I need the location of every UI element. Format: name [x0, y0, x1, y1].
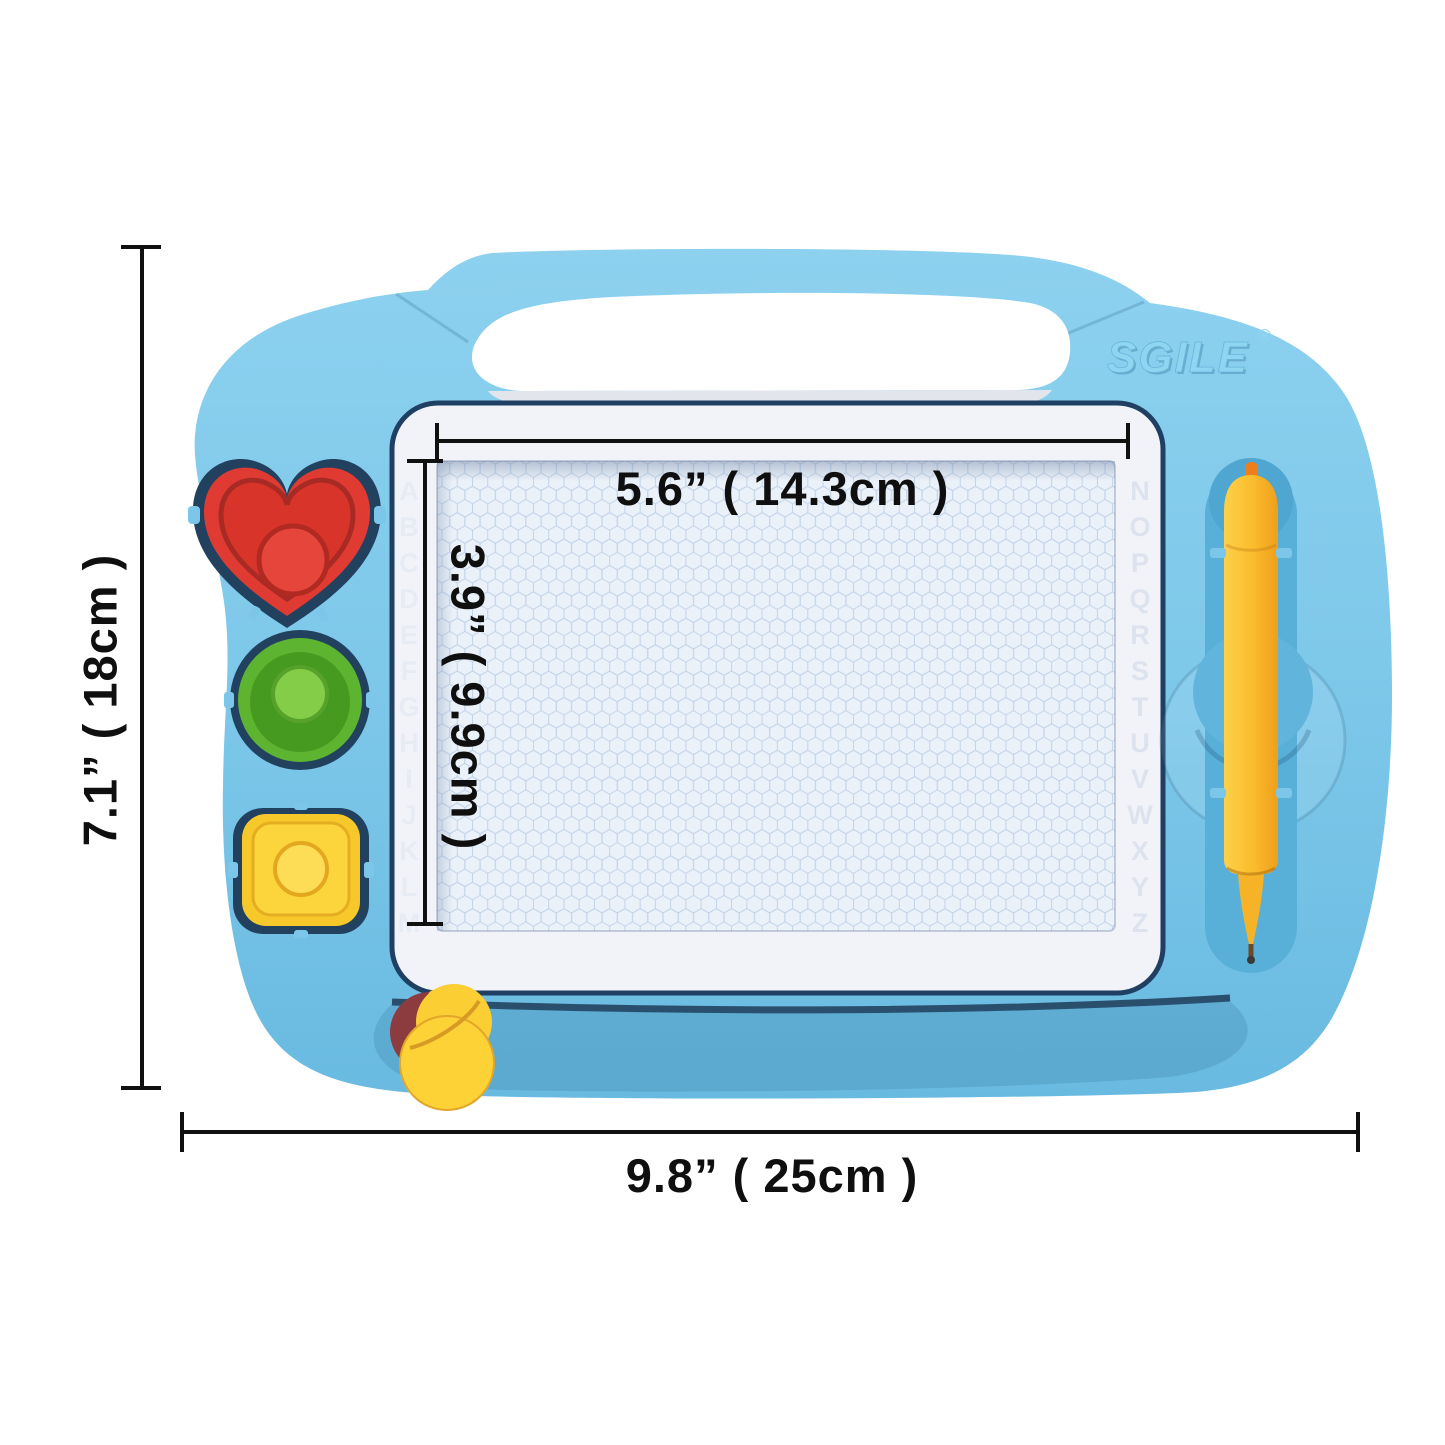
svg-text:F: F [401, 656, 418, 686]
dim-line-board-width [182, 1130, 1360, 1134]
svg-text:C: C [399, 548, 419, 578]
svg-text:L: L [401, 872, 418, 902]
svg-text:I: I [405, 764, 413, 794]
product-dimension-diagram: SGILE SGILE ® ABCDEFGHIJKLM NOPQRSTUVWXY… [0, 0, 1445, 1445]
dim-cap [407, 922, 443, 926]
svg-text:G: G [398, 692, 419, 722]
dim-cap [121, 245, 161, 249]
svg-text:V: V [1131, 764, 1149, 794]
square-stamp [228, 802, 374, 938]
brand-registered-mark: ® [1258, 326, 1271, 346]
brand-logo: SGILE SGILE ® [1107, 326, 1271, 384]
eraser-slider-track [374, 998, 1248, 1092]
svg-text:R: R [1130, 620, 1150, 650]
dim-line-screen-height [423, 461, 427, 925]
dim-cap [121, 1086, 161, 1090]
svg-text:P: P [1131, 548, 1149, 578]
svg-text:D: D [399, 584, 419, 614]
svg-text:E: E [400, 620, 418, 650]
svg-text:Z: Z [1132, 908, 1149, 938]
dim-cap [1356, 1112, 1360, 1152]
dim-cap [180, 1112, 184, 1152]
dim-cap [435, 423, 439, 459]
svg-text:K: K [399, 836, 419, 866]
drawing-board-illustration: SGILE SGILE ® ABCDEFGHIJKLM NOPQRSTUVWXY… [0, 0, 1445, 1445]
drawing-surface [437, 461, 1115, 931]
svg-text:W: W [1127, 800, 1153, 830]
dim-label-board-width: 9.8” ( 25cm ) [382, 1148, 1162, 1203]
svg-text:B: B [399, 512, 419, 542]
svg-text:Y: Y [1131, 872, 1149, 902]
svg-text:X: X [1131, 836, 1149, 866]
svg-text:H: H [399, 728, 419, 758]
dim-line-screen-width [437, 439, 1128, 443]
dim-label-screen-height: 3.9” ( 9.9cm ) [441, 544, 496, 851]
svg-text:T: T [1132, 692, 1149, 722]
dim-label-screen-width: 5.6” ( 14.3cm ) [437, 461, 1128, 516]
dim-cap [1126, 423, 1130, 459]
svg-text:S: S [1131, 656, 1149, 686]
svg-text:A: A [399, 476, 419, 506]
svg-text:U: U [1130, 728, 1150, 758]
svg-text:N: N [1130, 476, 1150, 506]
dim-line-board-height [140, 247, 144, 1090]
svg-text:J: J [401, 800, 416, 830]
dim-label-board-height: 7.1” ( 18cm ) [73, 554, 128, 847]
brand-logo-text: SGILE [1107, 333, 1249, 382]
dim-cap [407, 459, 443, 463]
svg-text:O: O [1129, 512, 1150, 542]
carry-handle-opening [472, 293, 1070, 409]
svg-text:Q: Q [1129, 584, 1150, 614]
